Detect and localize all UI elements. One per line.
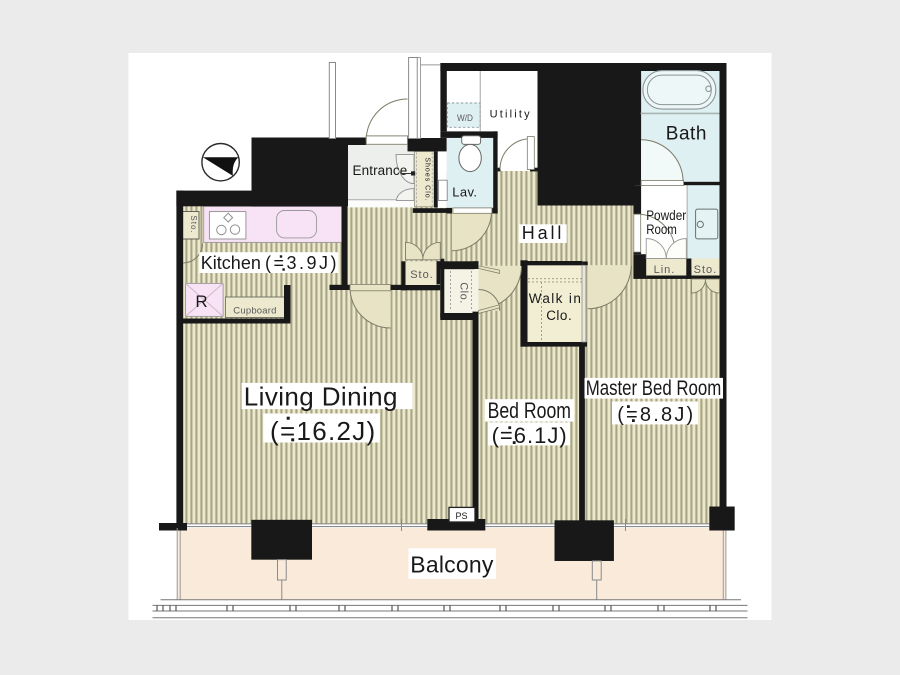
svg-text:Cupboard: Cupboard: [233, 306, 276, 317]
svg-text:Room: Room: [646, 221, 677, 237]
svg-text:(=16.2J): (=16.2J): [270, 416, 377, 446]
svg-text:W/D: W/D: [457, 113, 473, 124]
svg-text:(=6.1J): (=6.1J): [492, 423, 568, 448]
svg-text:Hall: Hall: [522, 223, 565, 243]
svg-text:R: R: [195, 292, 207, 311]
svg-text:Sto.: Sto.: [410, 269, 434, 281]
svg-text:Clo.: Clo.: [546, 308, 572, 323]
svg-text:Bath: Bath: [666, 124, 707, 145]
svg-text:Entrance: Entrance: [353, 163, 408, 178]
svg-text:Balcony: Balcony: [410, 552, 494, 578]
svg-text:Lin.: Lin.: [654, 264, 676, 276]
svg-text:Walk in: Walk in: [529, 291, 583, 306]
svg-text:Lav.: Lav.: [452, 185, 477, 200]
svg-text:Bed Room: Bed Room: [488, 398, 571, 423]
svg-text:(=3.9J): (=3.9J): [265, 253, 339, 273]
svg-text:PS: PS: [455, 511, 467, 521]
svg-text:Shoes Clo.: Shoes Clo.: [424, 157, 431, 201]
svg-text:Sto.: Sto.: [694, 264, 718, 276]
svg-text:Utility: Utility: [490, 109, 532, 121]
svg-text:Master Bed Room: Master Bed Room: [586, 377, 722, 400]
svg-text:Living Dining: Living Dining: [244, 382, 398, 412]
svg-text:Clo.: Clo.: [458, 282, 470, 304]
svg-text:Kitchen: Kitchen: [201, 253, 261, 273]
svg-text:Sto.: Sto.: [189, 215, 198, 233]
